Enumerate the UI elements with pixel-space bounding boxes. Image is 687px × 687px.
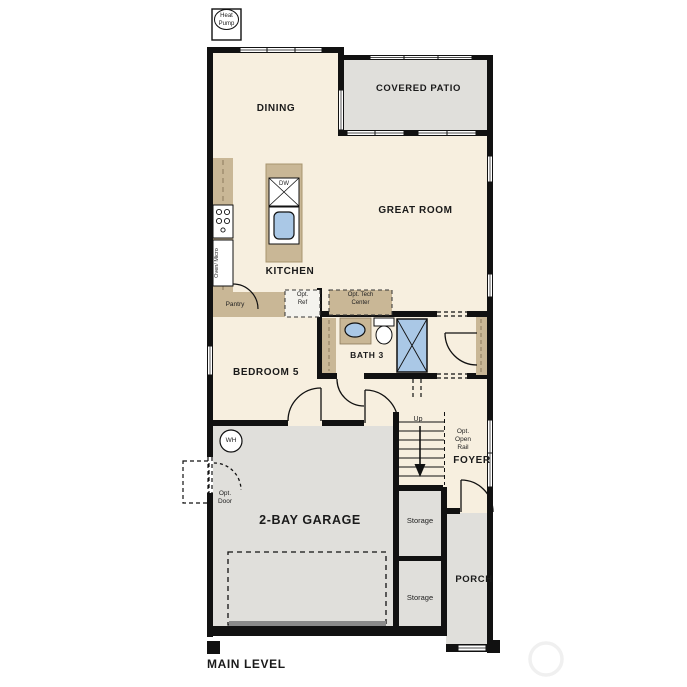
covered-patio-label: COVERED PATIO — [356, 83, 481, 95]
garage-area — [213, 426, 396, 632]
kitchen-sink-icon — [269, 207, 299, 244]
window — [347, 131, 404, 136]
up-label: Up — [404, 416, 432, 425]
kitchen-label: KITCHEN — [240, 266, 340, 278]
window — [370, 56, 472, 60]
dining-label: DINING — [213, 103, 339, 115]
bath-sink-icon — [345, 323, 365, 337]
coat-closet — [476, 317, 487, 375]
opt-door-label: Opt. Door — [212, 490, 238, 506]
garage-label: 2-BAY GARAGE — [245, 512, 375, 528]
heat-pump-label: Heat Pump — [212, 13, 241, 28]
floor-plan-drawing — [0, 0, 687, 687]
window — [488, 420, 493, 487]
storage-upper-label: Storage — [397, 516, 443, 525]
window — [240, 48, 322, 53]
pantry-label: Pantry — [214, 301, 256, 309]
storage-lower-label: Storage — [397, 593, 443, 602]
window — [208, 346, 213, 375]
foyer-label: FOYER — [446, 455, 498, 467]
opt-door-stoop — [183, 461, 209, 503]
cooktop-icon — [213, 205, 233, 238]
window — [418, 131, 476, 136]
shower-icon — [397, 319, 427, 372]
floor-plan: Heat Pump DINING COVERED PATIO GREAT ROO… — [0, 0, 687, 687]
scale-marker — [207, 641, 220, 654]
bath3-label: BATH 3 — [338, 350, 396, 360]
opt-open-rail-label: Opt. Open Rail — [449, 428, 477, 452]
porch-label: PORCH — [446, 574, 502, 586]
opt-ref-label: Opt. Ref — [292, 292, 313, 307]
dishwasher-label: DW — [269, 181, 299, 189]
water-heater-label: WH — [220, 437, 242, 445]
great-room-label: GREAT ROOM — [378, 205, 453, 217]
covered-patio-area — [343, 58, 488, 132]
oven-micro-label: Oven/ Micro — [214, 241, 232, 285]
bedroom5-label: BEDROOM 5 — [214, 367, 318, 379]
window — [339, 90, 344, 130]
toilet-icon — [374, 318, 394, 344]
garage-door — [229, 621, 386, 626]
main-level-label: MAIN LEVEL — [207, 657, 357, 672]
window — [488, 274, 493, 297]
window — [488, 156, 493, 182]
window — [458, 645, 486, 651]
watermark-circle — [530, 643, 562, 675]
opt-tech-center-label: Opt. Tech Center — [338, 292, 383, 307]
